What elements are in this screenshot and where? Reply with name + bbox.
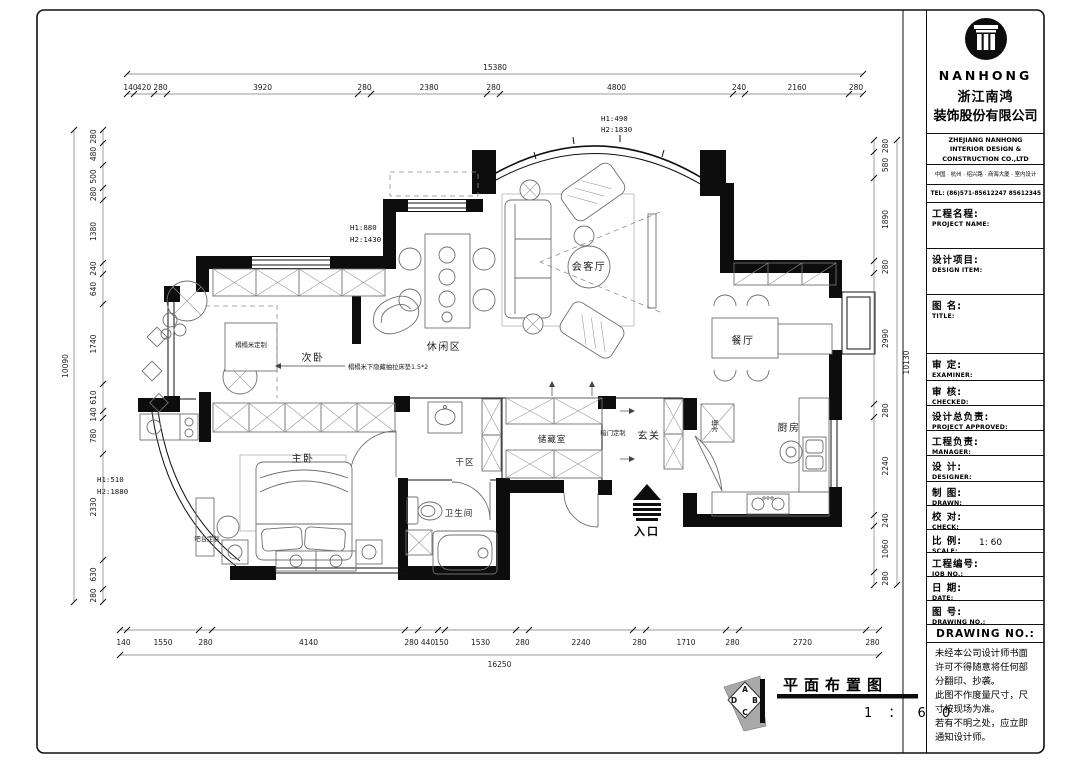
room-label-bedroom2: 次卧	[302, 351, 325, 364]
height-note-bay-1: H1:490	[601, 114, 628, 123]
svg-text:1380: 1380	[89, 222, 98, 241]
svg-text:280: 280	[849, 83, 864, 92]
dim-bottom-segments: 1401550280414028044015015302802240280171…	[116, 627, 882, 647]
field-project-name: 工程名程: PROJECT NAME:	[927, 203, 1044, 249]
svg-text:10090: 10090	[61, 354, 70, 378]
doors	[350, 431, 722, 527]
field-job-no: 工程编号: JOB NO.:	[927, 553, 1044, 577]
hidden-door-label: 暗门定制	[600, 428, 625, 437]
room-label-bathroom: 卫生间	[445, 508, 474, 519]
svg-text:280: 280	[357, 83, 372, 92]
field-design-item: 设计项目: DESIGN ITEM:	[927, 249, 1044, 295]
svg-text:1710: 1710	[676, 638, 695, 647]
svg-text:280: 280	[89, 187, 98, 202]
svg-text:280: 280	[515, 638, 530, 647]
svg-text:280: 280	[198, 638, 213, 647]
svg-text:4800: 4800	[607, 83, 626, 92]
floor-plan-drawing: 会客厅 餐厅 休闲区 次卧 主卧 干区 卫生间 储藏室 玄关 厨房 入口 冰箱 …	[0, 0, 1080, 764]
field-project-approved: 设计总负责: PROJECT APPROVED:	[927, 406, 1044, 431]
room-label-storage: 储藏室	[538, 434, 567, 445]
svg-text:2990: 2990	[881, 329, 890, 348]
svg-text:1060: 1060	[881, 539, 890, 558]
marker-letter-d: D	[731, 696, 737, 705]
svg-text:280: 280	[632, 638, 647, 647]
field-manager: 工程负责: MANAGER:	[927, 431, 1044, 456]
svg-text:280: 280	[404, 638, 419, 647]
title-block: NANHONG 浙江南鸿 装饰股份有限公司 ZHEJIANG NANHONG I…	[926, 10, 1044, 753]
dim-top-overall: 15380	[124, 63, 866, 77]
field-drawing-no: 图 号: DRAWING NO.:	[927, 601, 1044, 625]
svg-text:280: 280	[865, 638, 880, 647]
dim-bottom-overall: 16250	[117, 652, 882, 669]
drawing-sheet: NANHONG 浙江南鸿 装饰股份有限公司 ZHEJIANG NANHONG I…	[0, 0, 1080, 764]
tatami-note-label: 榻榻米下隐藏抽拉床垫1.5*2	[348, 362, 428, 371]
room-label-dry-area: 干区	[455, 458, 474, 468]
company-name-cn-2: 装饰股份有限公司	[927, 105, 1044, 124]
marker-letter-a: A	[742, 685, 748, 694]
svg-text:140: 140	[116, 638, 131, 647]
svg-text:240: 240	[89, 261, 98, 276]
room-labels: 会客厅 餐厅 休闲区 次卧 主卧 干区 卫生间 储藏室 玄关 厨房 入口 冰箱	[292, 260, 801, 538]
walls	[138, 135, 875, 580]
svg-text:440: 440	[421, 638, 436, 647]
room-label-kitchen: 厨房	[778, 421, 801, 434]
company-telephone: TEL: (86)571-85612247 85612345	[927, 185, 1044, 203]
sheet-frame	[37, 10, 1044, 753]
bar-custom-label: 吧台定制	[194, 534, 219, 543]
svg-text:1550: 1550	[153, 638, 172, 647]
svg-text:630: 630	[89, 567, 98, 582]
svg-text:280: 280	[153, 83, 168, 92]
elevation-marker-icon	[724, 676, 766, 731]
svg-text:280: 280	[881, 571, 890, 586]
svg-text:420: 420	[137, 83, 152, 92]
svg-text:15380: 15380	[483, 63, 507, 72]
svg-text:640: 640	[89, 282, 98, 297]
svg-text:4140: 4140	[299, 638, 318, 647]
dim-top-segments: 1404202803920280238028048002402160280	[123, 83, 866, 97]
svg-text:280: 280	[89, 588, 98, 603]
svg-text:10130: 10130	[902, 350, 911, 374]
svg-text:580: 580	[881, 158, 890, 173]
field-designer: 设 计: DESIGNER:	[927, 456, 1044, 482]
field-drawn: 制 图: DRAWN:	[927, 482, 1044, 506]
svg-text:280: 280	[486, 83, 501, 92]
svg-text:500: 500	[89, 169, 98, 184]
dim-right-segments: 2805801890280299028022402401060280	[871, 137, 890, 588]
svg-text:280: 280	[881, 403, 890, 418]
svg-text:150: 150	[434, 638, 449, 647]
svg-text:480: 480	[89, 147, 98, 162]
room-label-master: 主卧	[292, 452, 315, 465]
scale-value: 1: 60	[979, 538, 1002, 548]
svg-text:3920: 3920	[253, 83, 272, 92]
entrance-label: 入口	[634, 525, 660, 538]
svg-text:240: 240	[732, 83, 747, 92]
svg-text:280: 280	[881, 260, 890, 275]
dim-left-overall: 10090	[61, 127, 77, 605]
svg-text:1740: 1740	[89, 334, 98, 353]
svg-text:2720: 2720	[793, 638, 812, 647]
height-note-leisure-2: H2:1430	[350, 235, 381, 244]
svg-text:2160: 2160	[787, 83, 806, 92]
height-note-master-2: H2:1880	[97, 487, 128, 496]
tatami-custom-label: 榻榻米定制	[235, 340, 266, 349]
annotations: 榻榻米定制 榻榻米下隐藏抽拉床垫1.5*2 暗门定制 吧台定制 H1:490 H…	[97, 114, 632, 543]
logo-wordmark: NANHONG	[927, 68, 1044, 83]
marker-letter-b: B	[752, 696, 758, 705]
dim-left-segments: 2804805002801380240640174061014078023306…	[89, 127, 106, 605]
field-title: 图 名: TITLE:	[927, 295, 1044, 354]
height-note-master-1: H1:510	[97, 475, 124, 484]
height-note-leisure-1: H1:880	[350, 223, 377, 232]
svg-text:280: 280	[881, 139, 890, 154]
field-scale: 比 例: SCALE: 1: 60	[927, 530, 1044, 553]
svg-text:140: 140	[123, 83, 138, 92]
drawing-title: 平面布置图	[783, 676, 888, 694]
drawing-footer: A B C D 平面布置图 1 ： 6 0	[724, 676, 956, 731]
company-logo-section: NANHONG 浙江南鸿 装饰股份有限公司	[927, 10, 1044, 133]
nanhong-logo-icon	[963, 16, 1009, 62]
copyright-notes: 未经本公司设计师书面 许可不得随意将任何部 分翻印、抄袭。 此图不作度量尺寸，尺…	[927, 643, 1044, 745]
svg-text:1530: 1530	[471, 638, 490, 647]
room-label-dining: 餐厅	[732, 334, 755, 347]
svg-text:280: 280	[725, 638, 740, 647]
furniture	[140, 160, 836, 574]
svg-text:140: 140	[89, 407, 98, 422]
drawing-no-header: DRAWING NO.:	[927, 625, 1044, 643]
svg-text:280: 280	[89, 129, 98, 144]
fridge-label: 冰箱	[710, 420, 719, 433]
svg-text:16250: 16250	[488, 660, 512, 669]
field-examiner: 审 定: EXAMINER:	[927, 354, 1044, 381]
svg-text:1890: 1890	[881, 210, 890, 229]
svg-text:780: 780	[89, 429, 98, 444]
svg-text:2380: 2380	[419, 83, 438, 92]
svg-text:610: 610	[89, 390, 98, 405]
height-note-bay-2: H2:1830	[601, 125, 632, 134]
marker-letter-c: C	[742, 708, 748, 717]
room-label-leisure: 休闲区	[427, 340, 462, 353]
room-label-foyer: 玄关	[638, 429, 661, 442]
room-label-living: 会客厅	[572, 260, 607, 273]
field-checked: 审 核: CHECKED:	[927, 381, 1044, 406]
company-name-cn-1: 浙江南鸿	[927, 86, 1044, 105]
company-address: 中国 · 杭州 · 绍兴路 · 商海大厦 · 室内设计	[927, 165, 1044, 185]
svg-text:240: 240	[881, 513, 890, 528]
dim-right-overall: 10130	[894, 137, 911, 588]
svg-text:2240: 2240	[571, 638, 590, 647]
company-name-en: ZHEJIANG NANHONG INTERIOR DESIGN & CONST…	[927, 133, 1044, 165]
field-check: 校 对: CHECK:	[927, 506, 1044, 530]
svg-text:2240: 2240	[881, 456, 890, 475]
svg-text:2330: 2330	[89, 497, 98, 516]
entry-arrow-icon	[633, 484, 661, 521]
field-date: 日 期: DATE:	[927, 577, 1044, 601]
